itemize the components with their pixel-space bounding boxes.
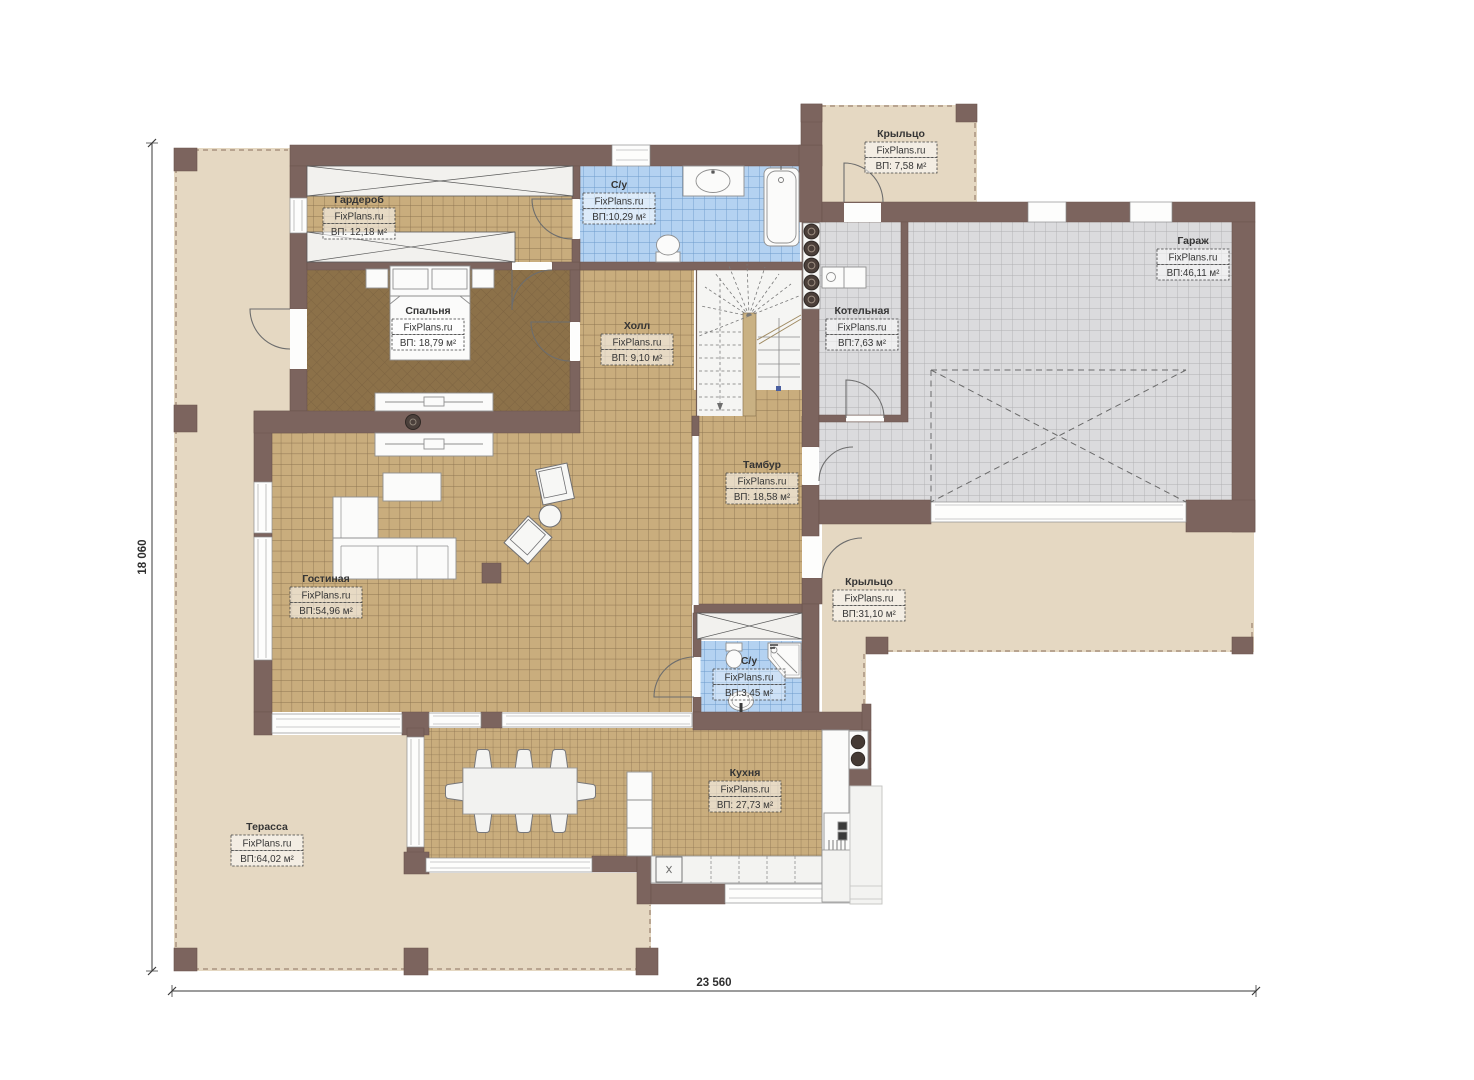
- svg-text:FixPlans.ru: FixPlans.ru: [845, 594, 894, 605]
- svg-text:Крыльцо: Крыльцо: [845, 576, 893, 588]
- svg-text:Терасса: Терасса: [246, 821, 288, 833]
- svg-text:ВП:46,11 м²: ВП:46,11 м²: [1167, 268, 1221, 279]
- svg-text:С/у: С/у: [741, 655, 758, 667]
- svg-text:ВП:54,96 м²: ВП:54,96 м²: [299, 606, 353, 617]
- svg-text:FixPlans.ru: FixPlans.ru: [838, 323, 887, 334]
- svg-text:FixPlans.ru: FixPlans.ru: [877, 146, 926, 157]
- svg-text:Спальня: Спальня: [405, 305, 450, 317]
- svg-text:Гостиная: Гостиная: [302, 573, 349, 585]
- svg-text:ВП: 12,18 м²: ВП: 12,18 м²: [331, 227, 388, 238]
- svg-text:Холл: Холл: [624, 320, 650, 332]
- svg-text:ВП:64,02 м²: ВП:64,02 м²: [240, 854, 294, 865]
- svg-text:ВП: 18,79 м²: ВП: 18,79 м²: [400, 338, 457, 349]
- svg-text:23 560: 23 560: [696, 977, 731, 989]
- svg-text:ВП: 9,10 м²: ВП: 9,10 м²: [612, 353, 664, 364]
- svg-text:ВП:10,29 м²: ВП:10,29 м²: [592, 212, 646, 223]
- svg-text:Котельная: Котельная: [835, 305, 890, 317]
- svg-text:Тамбур: Тамбур: [743, 459, 781, 471]
- svg-text:FixPlans.ru: FixPlans.ru: [335, 212, 384, 223]
- svg-text:Гараж: Гараж: [1177, 235, 1209, 247]
- svg-text:С/у: С/у: [611, 179, 628, 191]
- svg-text:Гардероб: Гардероб: [334, 194, 384, 206]
- svg-text:ВП:7,63 м²: ВП:7,63 м²: [838, 338, 887, 349]
- svg-text:ВП: 7,58 м²: ВП: 7,58 м²: [876, 161, 928, 172]
- svg-text:FixPlans.ru: FixPlans.ru: [1169, 253, 1218, 264]
- svg-text:ВП:31,10 м²: ВП:31,10 м²: [842, 609, 896, 620]
- svg-text:FixPlans.ru: FixPlans.ru: [725, 673, 774, 684]
- svg-text:FixPlans.ru: FixPlans.ru: [243, 839, 292, 850]
- svg-text:ВП: 18,58 м²: ВП: 18,58 м²: [734, 492, 791, 503]
- svg-text:FixPlans.ru: FixPlans.ru: [738, 477, 787, 488]
- svg-text:ВП: 27,73 м²: ВП: 27,73 м²: [717, 800, 774, 811]
- svg-text:18 060: 18 060: [137, 539, 149, 574]
- svg-text:FixPlans.ru: FixPlans.ru: [595, 197, 644, 208]
- svg-text:Кухня: Кухня: [730, 767, 761, 779]
- svg-text:FixPlans.ru: FixPlans.ru: [613, 338, 662, 349]
- svg-text:FixPlans.ru: FixPlans.ru: [404, 323, 453, 334]
- svg-text:ВП:3,45 м²: ВП:3,45 м²: [725, 688, 774, 699]
- svg-text:Крыльцо: Крыльцо: [877, 128, 925, 140]
- svg-text:FixPlans.ru: FixPlans.ru: [302, 591, 351, 602]
- svg-text:FixPlans.ru: FixPlans.ru: [721, 785, 770, 796]
